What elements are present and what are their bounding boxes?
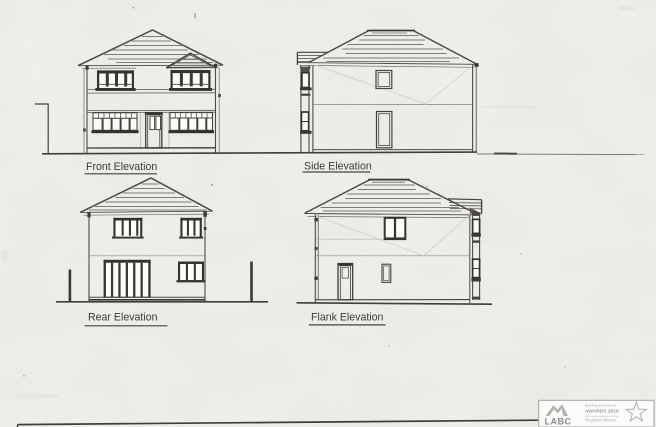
svg-text:LABC: LABC	[545, 417, 572, 427]
svg-text:AWARDS 2019: AWARDS 2019	[585, 408, 619, 414]
svg-text:Rear Elevation: Rear Elevation	[88, 312, 158, 324]
svg-text:Flank Elevation: Flank Elevation	[311, 312, 384, 324]
svg-text:Front Elevation: Front Elevation	[86, 161, 157, 173]
svg-text:Building Excellence: Building Excellence	[585, 404, 616, 408]
svg-text:Side Elevation: Side Elevation	[304, 161, 372, 173]
svg-text:Regional Winner: Regional Winner	[585, 417, 617, 422]
